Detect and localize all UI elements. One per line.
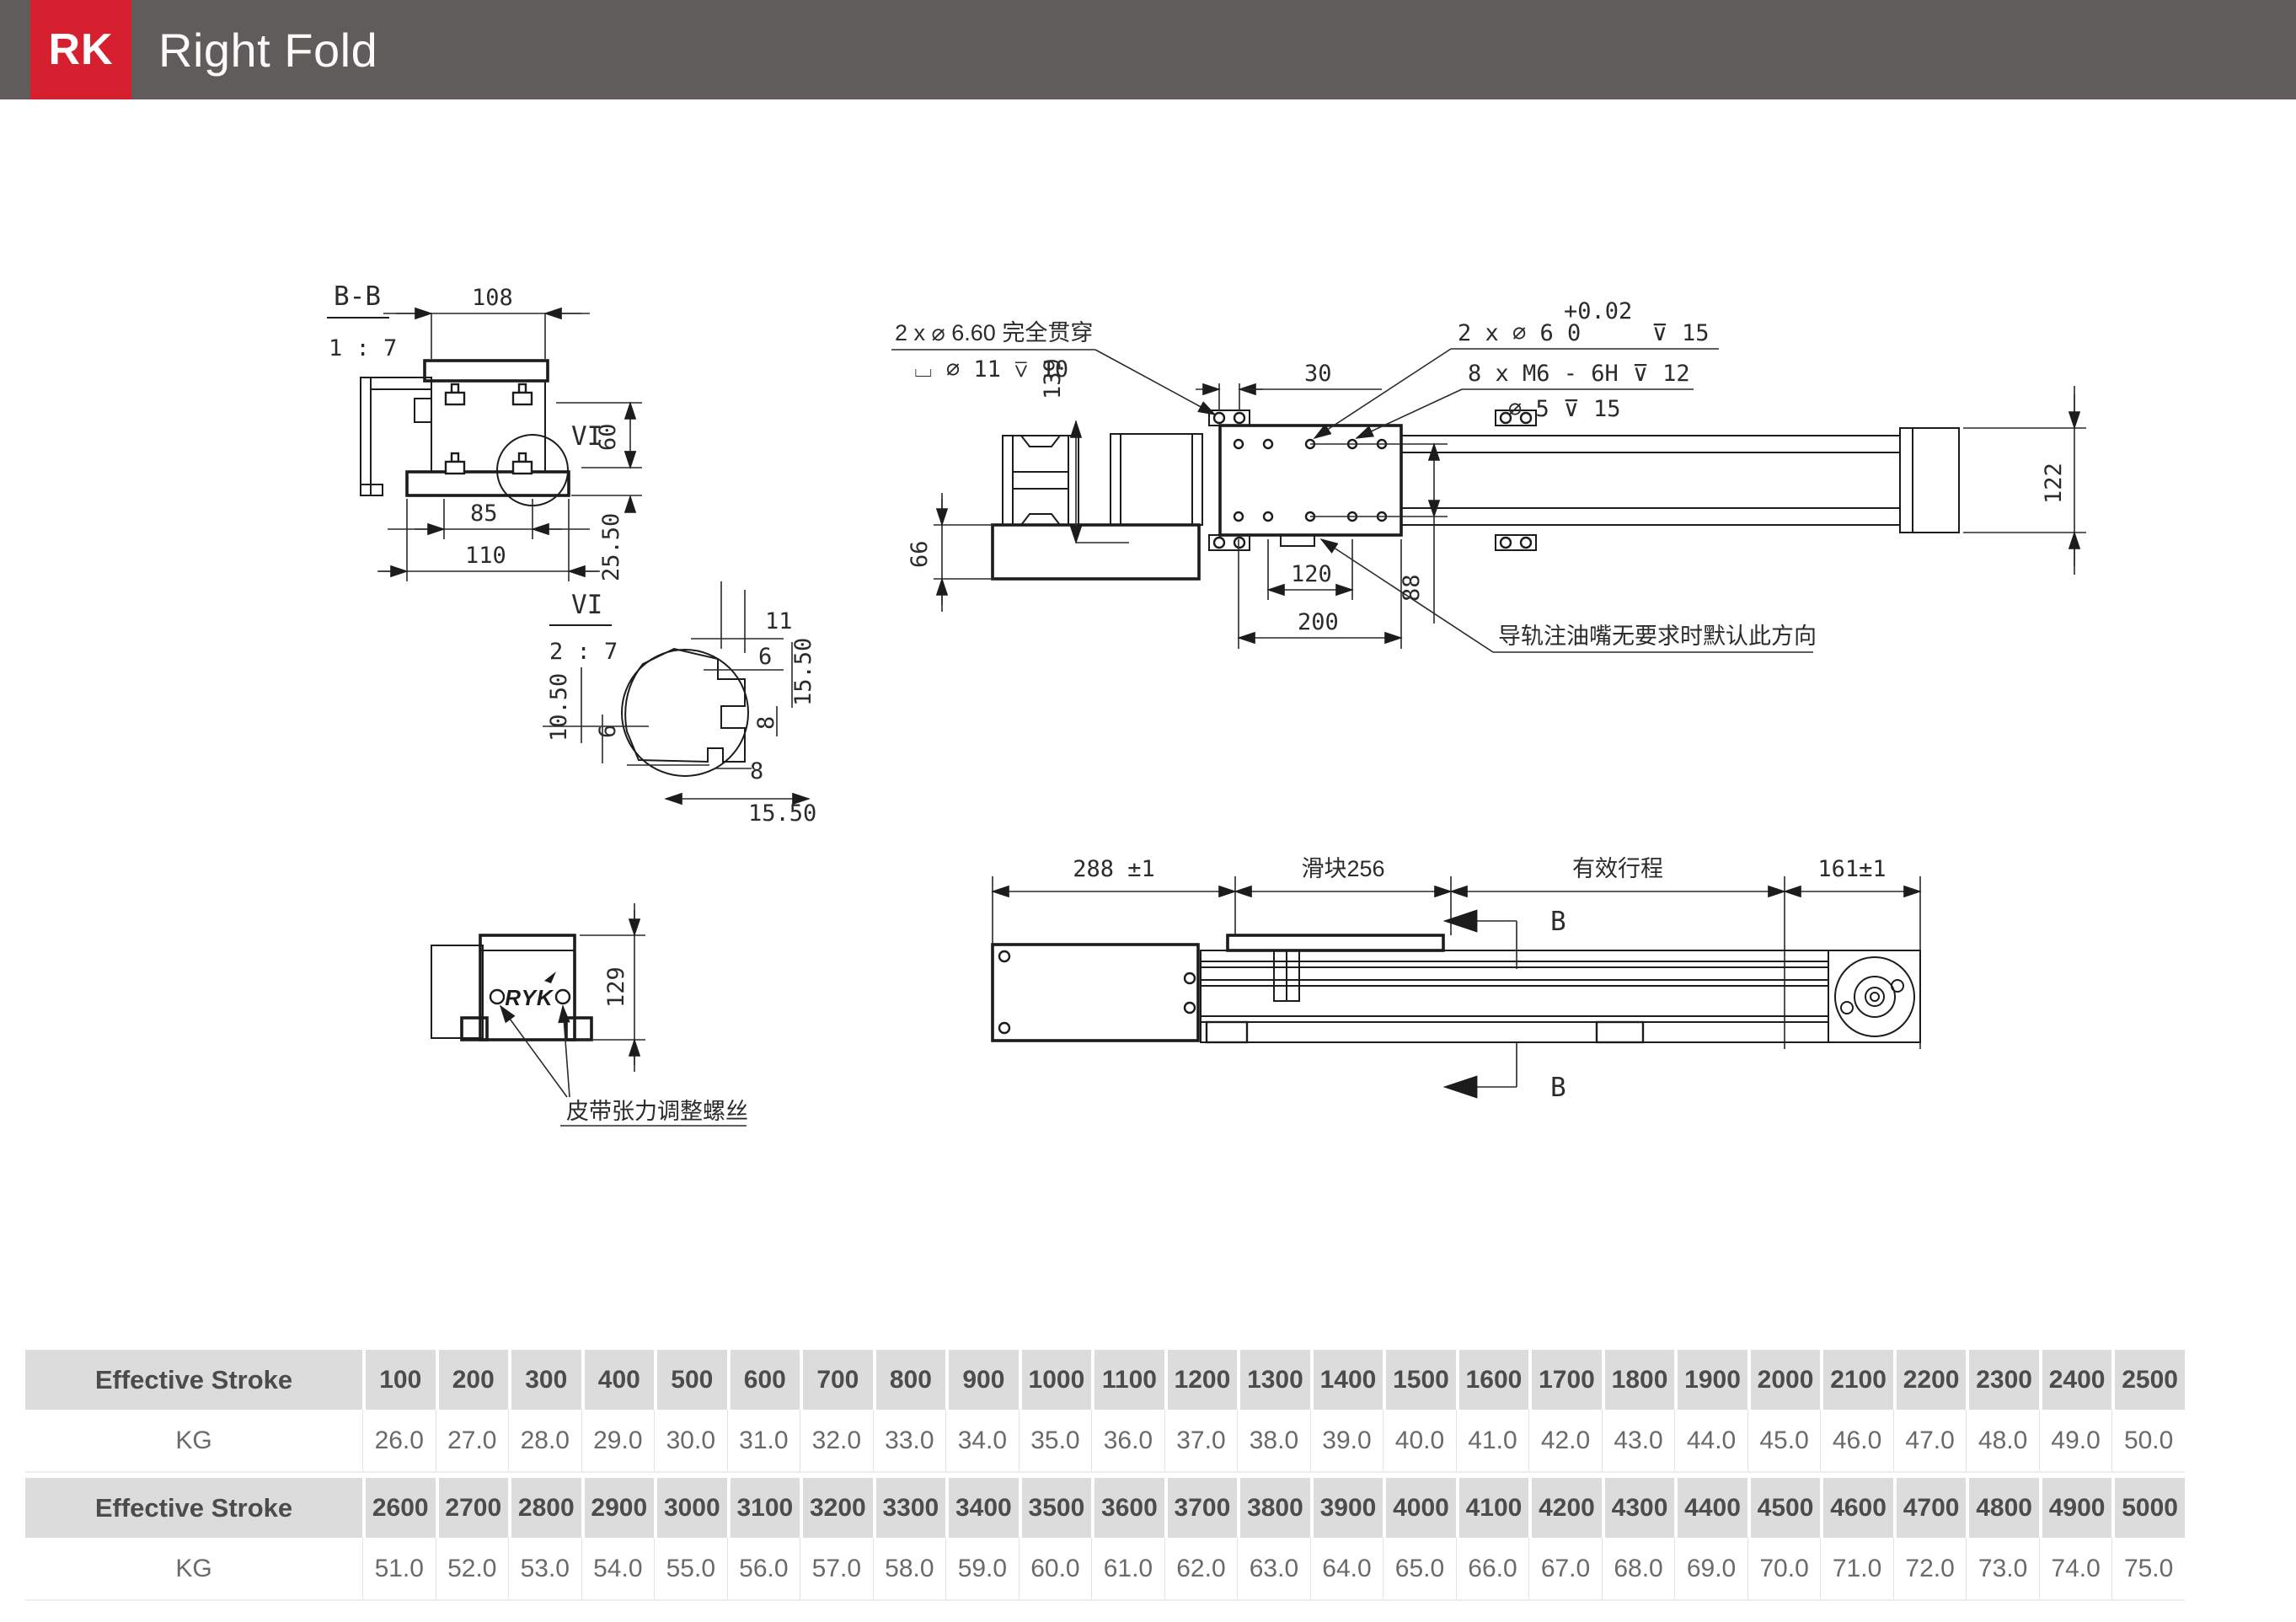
- stroke-header-cell: 3600: [1091, 1478, 1164, 1538]
- stroke-header-cell: 900: [945, 1350, 1019, 1410]
- stroke-header-cell: 5000: [2111, 1478, 2185, 1538]
- stroke-header-cell: 3800: [1237, 1478, 1310, 1538]
- kg-value-cell: 67.0: [1528, 1538, 1602, 1599]
- stroke-header-cell: 4100: [1456, 1478, 1529, 1538]
- dim-108: 108: [472, 285, 513, 311]
- stroke-header-cell: 1600: [1456, 1350, 1529, 1410]
- kg-value-cell: 49.0: [2039, 1410, 2112, 1471]
- kg-value-cell: 56.0: [727, 1538, 800, 1599]
- stroke-header-cell: 2600: [362, 1478, 436, 1538]
- stroke-header-cell: 2500: [2111, 1350, 2185, 1410]
- pulley-outer: [1835, 957, 1914, 1036]
- stroke-header-cell: 3900: [1310, 1478, 1383, 1538]
- kg-value-cell: 65.0: [1383, 1538, 1456, 1599]
- callout-tapped-pilot: ⌀ 5 ⊽ 15: [1508, 396, 1621, 422]
- kg-value-cell: 33.0: [873, 1410, 946, 1471]
- callout-dowel-depth: ⊽ 15: [1651, 320, 1710, 346]
- carriage-plate: [1228, 935, 1443, 950]
- stroke-header-cell: 1000: [1019, 1350, 1092, 1410]
- dim-vi-6b: 6: [595, 725, 621, 738]
- stroke-header-cell: 1300: [1237, 1350, 1310, 1410]
- section-bb-scale: 1 : 7: [329, 335, 397, 361]
- dim-vi-10-50: 10.50: [546, 673, 572, 741]
- kg-row-2: KG 51.052.053.054.055.056.057.058.059.06…: [25, 1538, 2185, 1601]
- stroke-header-cell: 2800: [508, 1478, 581, 1538]
- kg-value-cell: 71.0: [1820, 1538, 1893, 1599]
- callout-dowel: 2 x ⌀ 6 0: [1458, 320, 1581, 346]
- kg-value-cell: 66.0: [1456, 1538, 1529, 1599]
- stroke-header-cell: 1200: [1164, 1350, 1238, 1410]
- kg-value-cell: 26.0: [362, 1410, 436, 1471]
- stroke-header-cell: 1500: [1383, 1350, 1456, 1410]
- kg-value-cell: 58.0: [873, 1538, 946, 1599]
- dim-vi-15-50b: 15.50: [748, 800, 816, 827]
- stroke-header-cell: 2100: [1820, 1350, 1893, 1410]
- stroke-header-row-2: Effective Stroke 26002700280029003000310…: [25, 1478, 2185, 1538]
- drawing-detail-vi: VI 2 : 7 11 6 15.50 8 10.50 6 8 15.50: [543, 581, 816, 827]
- kg-value-cell: 37.0: [1164, 1410, 1238, 1471]
- dim-88: 88: [1399, 574, 1425, 602]
- ryk-logo-arrow-icon: [544, 972, 556, 983]
- stroke-header-cell: 3100: [727, 1478, 800, 1538]
- kg-value-cell: 27.0: [436, 1410, 509, 1471]
- kg-value-cell: 39.0: [1310, 1410, 1383, 1471]
- dim-120: 120: [1291, 561, 1332, 587]
- kg-value-cell: 35.0: [1019, 1410, 1092, 1471]
- kg-value-cell: 38.0: [1237, 1410, 1310, 1471]
- stroke-header-cell: 4200: [1528, 1478, 1602, 1538]
- belt-screw-right: [556, 990, 570, 1004]
- dim-25-50: 25.50: [598, 513, 624, 581]
- kg-value-cell: 60.0: [1019, 1538, 1092, 1599]
- dim-vi-15-50a: 15.50: [790, 638, 816, 706]
- kg-value-cell: 44.0: [1674, 1410, 1747, 1471]
- section-b-bottom: B: [1550, 1073, 1566, 1103]
- stroke-header-cell: 3000: [654, 1478, 727, 1538]
- stroke-header-cell: 1400: [1310, 1350, 1383, 1410]
- stroke-header-cell: 4400: [1674, 1478, 1747, 1538]
- stroke-header-cell: 100: [362, 1350, 436, 1410]
- dim-vi-8a: 8: [753, 716, 779, 730]
- kg-value-cell: 55.0: [654, 1538, 727, 1599]
- stroke-header-cell: 4000: [1383, 1478, 1456, 1538]
- kg-value-cell: 36.0: [1091, 1410, 1164, 1471]
- kg-value-cell: 62.0: [1164, 1538, 1238, 1599]
- kg-value-cell: 52.0: [436, 1538, 509, 1599]
- stroke-header-cell: 4600: [1820, 1478, 1893, 1538]
- kg-row-label: KG: [25, 1538, 362, 1599]
- dim-288: 288 ±1: [1073, 856, 1155, 882]
- stroke-header-cell: 4700: [1893, 1478, 1967, 1538]
- dim-slider-256: 滑块256: [1301, 856, 1384, 881]
- t-slots: [446, 384, 532, 474]
- kg-value-cell: 54.0: [581, 1538, 655, 1599]
- stroke-header-cell: 4300: [1602, 1478, 1675, 1538]
- dim-122: 122: [2041, 463, 2067, 504]
- note-oil-nozzle: 导轨注油嘴无要求时默认此方向: [1498, 624, 1817, 649]
- detail-vi-scale: 2 : 7: [549, 639, 618, 665]
- dim-110: 110: [465, 543, 506, 569]
- kg-value-cell: 64.0: [1310, 1538, 1383, 1599]
- stroke-header-cell: 400: [581, 1350, 655, 1410]
- dim-129: 129: [603, 966, 629, 1008]
- dim-60: 60: [595, 423, 621, 451]
- stroke-header-cell: 2400: [2039, 1350, 2112, 1410]
- stroke-header-cell: 800: [873, 1350, 946, 1410]
- kg-value-cell: 51.0: [362, 1538, 436, 1599]
- section-b-top: B: [1550, 907, 1566, 937]
- dim-30: 30: [1304, 361, 1332, 387]
- stroke-header-cell: 2200: [1893, 1350, 1967, 1410]
- kg-value-cell: 48.0: [1966, 1410, 2039, 1471]
- kg-value-cell: 30.0: [654, 1410, 727, 1471]
- kg-value-cell: 72.0: [1893, 1538, 1967, 1599]
- stroke-header-label: Effective Stroke: [25, 1478, 362, 1538]
- stroke-header-cell: 200: [436, 1350, 509, 1410]
- stroke-header-row-1: Effective Stroke 10020030040050060070080…: [25, 1350, 2185, 1410]
- grease-fitting: [1281, 535, 1314, 546]
- kg-row-label: KG: [25, 1410, 362, 1471]
- ryk-brand: RYK: [505, 985, 554, 1010]
- dim-85: 85: [470, 501, 498, 527]
- drawing-side-view: 288 ±1 滑块256 有效行程 161±1 B: [993, 856, 1920, 1103]
- dim-139: 139: [1040, 358, 1066, 399]
- kg-value-cell: 68.0: [1602, 1538, 1675, 1599]
- note-belt-tension: 皮带张力调整螺丝: [566, 1099, 748, 1124]
- drawing-motor-view: RYK 129 皮带张力调整螺丝: [431, 903, 748, 1126]
- kg-value-cell: 50.0: [2111, 1410, 2185, 1471]
- stroke-header-cell: 300: [508, 1350, 581, 1410]
- dim-vi-11: 11: [765, 608, 793, 634]
- kg-row-1: KG 26.027.028.029.030.031.032.033.034.03…: [25, 1410, 2185, 1473]
- stroke-header-cell: 500: [654, 1350, 727, 1410]
- stroke-header-cell: 3200: [800, 1478, 873, 1538]
- stroke-header-cell: 2700: [436, 1478, 509, 1538]
- stroke-header-cell: 4500: [1747, 1478, 1821, 1538]
- dim-effective-stroke: 有效行程: [1572, 856, 1663, 881]
- callout-through-holes-1: 2 x ⌀ 6.60 完全贯穿: [895, 320, 1093, 345]
- stroke-header-cell: 3700: [1164, 1478, 1238, 1538]
- stroke-header-cell: 2900: [581, 1478, 655, 1538]
- kg-value-cell: 41.0: [1456, 1410, 1529, 1471]
- kg-value-cell: 75.0: [2111, 1538, 2185, 1599]
- kg-value-cell: 42.0: [1528, 1410, 1602, 1471]
- kg-value-cell: 74.0: [2039, 1538, 2112, 1599]
- stroke-header-cell: 2000: [1747, 1350, 1821, 1410]
- kg-value-cell: 34.0: [945, 1410, 1019, 1471]
- kg-value-cell: 61.0: [1091, 1538, 1164, 1599]
- dim-200: 200: [1298, 609, 1339, 635]
- load-capacity-table: Effective Stroke 10020030040050060070080…: [25, 1350, 2185, 1601]
- section-bb-label: B-B: [334, 281, 381, 312]
- stroke-header-cell: 2300: [1966, 1350, 2039, 1410]
- dim-vi-6a: 6: [758, 644, 772, 670]
- stroke-header-cell: 4800: [1966, 1478, 2039, 1538]
- drawing-section-bb: B-B 1 : 7 108 VI 60: [327, 281, 642, 581]
- stroke-header-cell: 1700: [1528, 1350, 1602, 1410]
- kg-value-cell: 59.0: [945, 1538, 1019, 1599]
- stroke-header-cell: 1900: [1674, 1350, 1747, 1410]
- kg-value-cell: 29.0: [581, 1410, 655, 1471]
- detail-vi-label: VI: [571, 590, 602, 620]
- kg-value-cell: 57.0: [800, 1538, 873, 1599]
- kg-value-cell: 70.0: [1747, 1538, 1821, 1599]
- belt-screw-left: [490, 990, 504, 1004]
- kg-value-cell: 40.0: [1383, 1410, 1456, 1471]
- dim-vi-8b: 8: [750, 758, 763, 784]
- stroke-header-cell: 700: [800, 1350, 873, 1410]
- dim-66: 66: [907, 540, 933, 568]
- kg-value-cell: 46.0: [1820, 1410, 1893, 1471]
- kg-value-cell: 69.0: [1674, 1538, 1747, 1599]
- stroke-header-label: Effective Stroke: [25, 1350, 362, 1410]
- stroke-header-cell: 1100: [1091, 1350, 1164, 1410]
- drawing-plan-view: 2 x ⌀ 6.60 完全贯穿 ⌴ ⌀ 11 ⊽ 10 +0.02 2 x ⌀ …: [891, 298, 2086, 652]
- stroke-header-cell: 4900: [2039, 1478, 2112, 1538]
- kg-value-cell: 32.0: [800, 1410, 873, 1471]
- stroke-header-cell: 3500: [1019, 1478, 1092, 1538]
- stroke-header-cell: 1800: [1602, 1350, 1675, 1410]
- kg-value-cell: 53.0: [508, 1538, 581, 1599]
- kg-value-cell: 31.0: [727, 1410, 800, 1471]
- dim-161: 161±1: [1817, 856, 1886, 882]
- stroke-header-cell: 3300: [873, 1478, 946, 1538]
- stroke-header-cell: 600: [727, 1350, 800, 1410]
- kg-value-cell: 28.0: [508, 1410, 581, 1471]
- kg-value-cell: 63.0: [1237, 1538, 1310, 1599]
- carriage-holes: [1234, 440, 1386, 521]
- kg-value-cell: 45.0: [1747, 1410, 1821, 1471]
- callout-tapped: 8 x M6 - 6H ⊽ 12: [1468, 361, 1690, 387]
- kg-value-cell: 47.0: [1893, 1410, 1967, 1471]
- kg-value-cell: 73.0: [1966, 1538, 2039, 1599]
- kg-value-cell: 43.0: [1602, 1410, 1675, 1471]
- stroke-header-cell: 3400: [945, 1478, 1019, 1538]
